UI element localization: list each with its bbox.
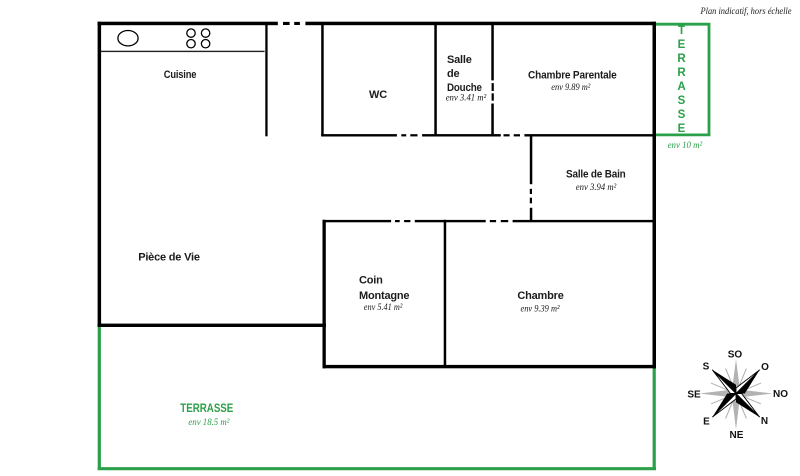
svg-text:E: E (703, 417, 710, 428)
svg-text:Salle: Salle (447, 54, 472, 66)
svg-text:Chambre Parentale: Chambre Parentale (528, 69, 617, 81)
svg-text:R: R (677, 53, 686, 65)
svg-text:TERRASSE: TERRASSE (180, 403, 233, 415)
svg-text:S: S (678, 95, 686, 107)
svg-text:SO: SO (728, 350, 743, 361)
svg-text:E: E (678, 123, 686, 135)
svg-text:env 3.41 m²: env 3.41 m² (446, 93, 487, 104)
svg-text:Pièce de Vie: Pièce de Vie (138, 252, 200, 264)
svg-text:Cuisine: Cuisine (164, 69, 197, 81)
svg-text:NE: NE (730, 430, 744, 441)
svg-text:S: S (678, 109, 686, 121)
svg-text:env 9.89 m²: env 9.89 m² (551, 82, 591, 93)
svg-text:E: E (678, 39, 686, 51)
svg-text:Salle de Bain: Salle de Bain (566, 169, 626, 181)
svg-text:NO: NO (773, 389, 788, 400)
svg-text:T: T (678, 25, 685, 37)
svg-text:Chambre: Chambre (517, 290, 563, 302)
svg-text:R: R (677, 67, 686, 79)
svg-text:env 3.94 m²: env 3.94 m² (576, 182, 617, 193)
svg-text:WC: WC (369, 89, 387, 101)
svg-text:env 5.41 m²: env 5.41 m² (364, 302, 403, 313)
svg-text:A: A (677, 81, 685, 93)
svg-text:SE: SE (687, 390, 701, 401)
svg-text:S: S (703, 362, 710, 373)
svg-text:Montagne: Montagne (359, 290, 409, 302)
svg-text:Plan indicatif, hors échelle: Plan indicatif, hors échelle (700, 6, 792, 17)
svg-text:Coin: Coin (359, 275, 383, 287)
svg-text:env 10 m²: env 10 m² (668, 141, 703, 151)
svg-text:de: de (447, 68, 460, 80)
svg-text:O: O (761, 362, 769, 373)
svg-text:N: N (761, 416, 768, 427)
svg-text:env 18.5 m²: env 18.5 m² (188, 418, 229, 428)
svg-text:env 9.39 m²: env 9.39 m² (521, 303, 561, 314)
